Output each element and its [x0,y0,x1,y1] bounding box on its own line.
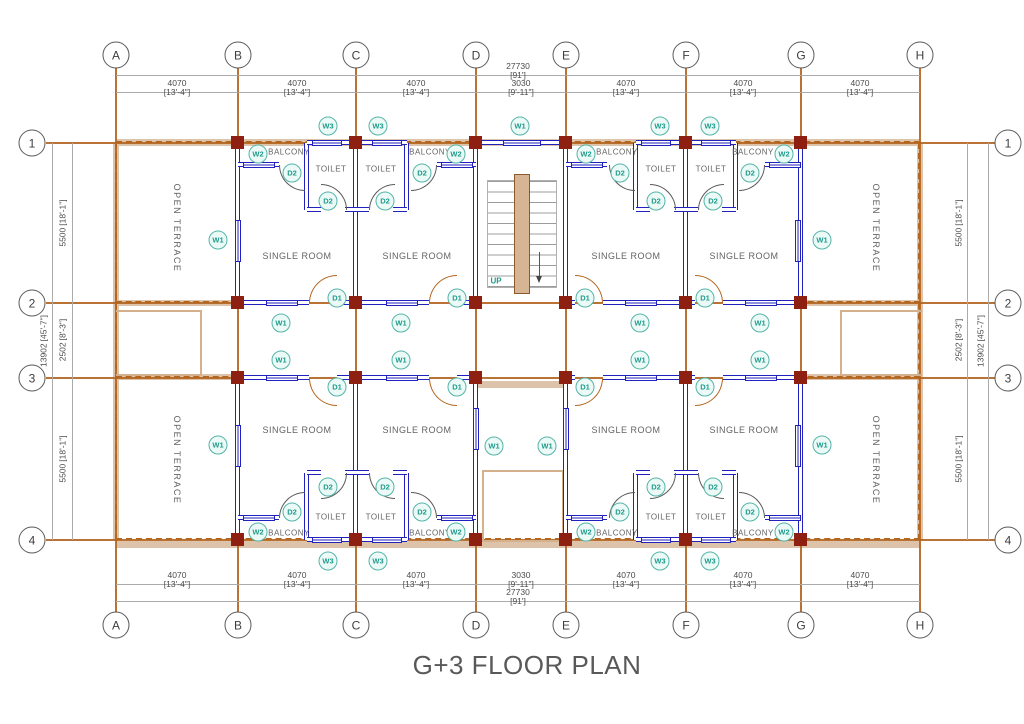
column [469,371,482,384]
column [469,136,482,149]
tag-d1: D1 [576,289,595,308]
grid-bubble-row: 3 [19,365,46,392]
window-symbol [701,537,731,543]
room-label-toilet: TOILET [646,513,677,522]
column [559,136,572,149]
column [469,533,482,546]
dim-line [52,143,53,540]
tag-d1: D1 [696,289,715,308]
window-symbol [795,425,801,467]
floor-plan-canvas: UP W1 W1 W1 W1 W1 W1 W1 W1 W1 W1 W1 W1 W… [0,0,1024,724]
tag-w2: W2 [447,145,466,164]
room-label-toilet: TOILET [646,165,677,174]
tag-d2: D2 [283,164,302,183]
dim-top-seg: 4070[13'-4"] [847,79,873,98]
window-symbol [386,300,418,306]
tag-d1: D1 [328,289,347,308]
tag-w3: W3 [319,117,338,136]
wall-segment [345,470,369,475]
column [794,296,807,309]
dim-bottom-seg: 4070[13'-4"] [403,571,429,590]
drawing-title: G+3 FLOOR PLAN [413,650,642,681]
tag-d2: D2 [704,192,723,211]
window-symbol [745,375,777,381]
tag-d1: D1 [576,378,595,397]
tag-d2: D2 [319,478,338,497]
window-symbol [641,140,671,146]
tag-w1: W1 [209,231,228,250]
dim-top-seg: 4070[13'-4"] [284,79,310,98]
tag-d2: D2 [611,503,630,522]
wall-segment [393,207,407,212]
dashed-edge-row2-right [798,301,920,303]
tag-w3: W3 [369,117,388,136]
column [231,136,244,149]
dim-line [988,143,989,540]
column [559,371,572,384]
tag-d2: D2 [741,503,760,522]
dim-top-seg: 4070[13'-4"] [403,79,429,98]
window-symbol [473,408,479,450]
tag-w2: W2 [249,523,268,542]
room-label-balcony: BALCONY [409,529,451,538]
dim-left-overall: 13902[45'-7"] [39,314,48,368]
wall-segment [473,143,478,303]
tag-w1: W1 [485,437,504,456]
grid-bubble-row: 3 [995,365,1022,392]
wall-segment [722,470,736,475]
grid-bubble-row: 4 [995,527,1022,554]
grid-bubble-col: B [225,612,252,639]
tag-w3: W3 [369,552,388,571]
window-symbol [701,140,731,146]
grid-bubble-col: E [553,42,580,69]
dim-right-seg: 2502[8'-3"] [954,318,963,363]
room-label-single-room: SINGLE ROOM [709,425,778,435]
window-symbol [795,220,801,262]
tag-w3: W3 [319,552,338,571]
room-label-toilet: TOILET [366,513,397,522]
tag-w1: W1 [751,351,770,370]
dim-bottom-seg: 4070[13'-4"] [284,571,310,590]
room-label-toilet: TOILET [696,165,727,174]
column [679,371,692,384]
column [794,136,807,149]
window-symbol [625,300,657,306]
grid-bubble-row: 1 [995,130,1022,157]
stair-up-label: UP [490,277,501,286]
column [231,296,244,309]
tag-d2: D2 [319,192,338,211]
column [559,533,572,546]
window-symbol [266,375,298,381]
tag-d1: D1 [328,378,347,397]
wall-segment [674,470,698,475]
window-symbol [235,425,241,467]
window-symbol [441,515,473,521]
grid-bubble-col: C [343,42,370,69]
window-symbol [312,537,342,543]
window-symbol [235,220,241,262]
window-symbol [571,515,603,521]
wall-segment [636,470,650,475]
dim-bottom-overall: 27730[91'] [506,588,530,607]
stair-arrow-head [536,276,542,283]
room-label-single-room: SINGLE ROOM [591,425,660,435]
room-label-balcony: BALCONY [409,148,451,157]
tag-w2: W2 [249,145,268,164]
dim-bottom-seg: 4070[13'-4"] [730,571,756,590]
grid-bubble-col: H [907,42,934,69]
dim-left-seg: 2502[8'-3"] [58,318,67,363]
grid-bubble-col: F [673,42,700,69]
dim-right-overall: 13902[45'-7"] [976,314,985,368]
window-symbol [386,375,418,381]
room-label-balcony: BALCONY [732,148,774,157]
tag-w1: W1 [538,437,557,456]
grid-bubble-row: 2 [995,290,1022,317]
window-symbol [769,515,801,521]
tag-w1: W1 [392,314,411,333]
room-label-toilet: TOILET [366,165,397,174]
dim-bottom-seg: 4070[13'-4"] [847,571,873,590]
window-symbol [372,537,402,543]
room-label-single-room: SINGLE ROOM [262,425,331,435]
column [349,533,362,546]
grid-bubble-col: F [673,612,700,639]
wall-segment [683,378,688,540]
wall-segment [307,207,321,212]
tag-w1: W1 [511,117,530,136]
tag-w1: W1 [813,231,832,250]
window-symbol [503,140,541,146]
stair-arrow-line [539,252,540,276]
tag-w1: W1 [272,351,291,370]
tag-w1: W1 [813,436,832,455]
room-label-single-room: SINGLE ROOM [382,425,451,435]
dashed-edge-row3-left [116,376,238,378]
dim-top-seg: 4070[13'-4"] [613,79,639,98]
terrace-box-left [116,310,202,376]
room-label-toilet: TOILET [696,513,727,522]
dim-right-seg: 5500[18'-1"] [954,198,963,247]
window-symbol [625,375,657,381]
window-symbol [372,140,402,146]
grid-bubble-col: G [788,42,815,69]
room-label-balcony: BALCONY [596,529,638,538]
tag-w2: W2 [577,145,596,164]
room-label-toilet: TOILET [316,165,347,174]
tag-d2: D2 [413,164,432,183]
room-label-single-room: SINGLE ROOM [262,251,331,261]
dashed-edge-row3-right [798,376,920,378]
tag-d2: D2 [741,164,760,183]
window-symbol [745,300,777,306]
wall-segment [674,207,698,212]
room-label-single-room: SINGLE ROOM [709,251,778,261]
dim-top-seg: 4070[13'-4"] [730,79,756,98]
column [469,296,482,309]
parapet-band-shaft [476,381,566,388]
room-label-open-terrace: OPEN TERRACE [172,416,182,505]
column [349,296,362,309]
dashed-edge-row2-left [116,301,238,303]
room-label-open-terrace: OPEN TERRACE [871,416,881,505]
tag-w3: W3 [651,117,670,136]
window-symbol [563,408,569,450]
tag-d2: D2 [647,478,666,497]
window-symbol [243,515,275,521]
tag-w3: W3 [651,552,670,571]
grid-bubble-col: D [463,42,490,69]
grid-bubble-row: 4 [19,527,46,554]
window-symbol [641,537,671,543]
dim-bottom-seg: 4070[13'-4"] [613,571,639,590]
tag-w1: W1 [209,436,228,455]
grid-bubble-col: B [225,42,252,69]
tag-d2: D2 [376,478,395,497]
tag-d2: D2 [611,164,630,183]
tag-w1: W1 [631,351,650,370]
tag-d2: D2 [283,503,302,522]
wall-segment [563,143,568,303]
tag-w1: W1 [392,351,411,370]
tag-w3: W3 [701,117,720,136]
wall-segment [353,143,358,303]
tag-w1: W1 [751,314,770,333]
grid-bubble-col: C [343,612,370,639]
room-label-single-room: SINGLE ROOM [591,251,660,261]
dim-line [967,143,968,540]
dim-bottom-seg: 4070[13'-4"] [164,571,190,590]
room-label-toilet: TOILET [316,513,347,522]
room-label-open-terrace: OPEN TERRACE [172,184,182,273]
shaft-box [482,470,564,542]
grid-bubble-col: H [907,612,934,639]
stair-rail [514,174,530,294]
dim-top-seg: 4070[13'-4"] [164,79,190,98]
window-symbol [266,300,298,306]
grid-bubble-col: G [788,612,815,639]
dim-left-seg: 5500[18'-1"] [58,198,67,247]
tag-d2: D2 [647,192,666,211]
grid-bubble-row: 1 [19,130,46,157]
column [559,296,572,309]
wall-segment [393,470,407,475]
room-label-balcony: BALCONY [732,529,774,538]
wall-segment [722,207,736,212]
tag-d2: D2 [704,478,723,497]
window-symbol [312,140,342,146]
tag-w1: W1 [272,314,291,333]
column [679,136,692,149]
room-label-open-terrace: OPEN TERRACE [871,184,881,273]
grid-bubble-col: A [103,42,130,69]
column [679,296,692,309]
column [349,136,362,149]
tag-w2: W2 [775,145,794,164]
tag-d2: D2 [413,503,432,522]
dim-left-seg: 5500[18'-1"] [58,434,67,483]
wall-segment [683,143,688,303]
wall-segment [345,207,369,212]
grid-bubble-col: A [103,612,130,639]
room-label-balcony: BALCONY [268,529,310,538]
tag-w2: W2 [577,523,596,542]
column [794,371,807,384]
column [349,371,362,384]
wall-segment [307,470,321,475]
dim-right-seg: 5500[18'-1"] [954,434,963,483]
tag-d1: D1 [448,289,467,308]
room-label-balcony: BALCONY [268,148,310,157]
tag-w3: W3 [701,552,720,571]
grid-bubble-col: E [553,612,580,639]
tag-d1: D1 [448,378,467,397]
room-label-single-room: SINGLE ROOM [382,251,451,261]
grid-bubble-row: 2 [19,290,46,317]
wall-segment [353,378,358,540]
column [231,533,244,546]
grid-bubble-col: D [463,612,490,639]
terrace-box-right [840,310,922,376]
tag-w2: W2 [775,523,794,542]
tag-d1: D1 [696,378,715,397]
column [794,533,807,546]
tag-d2: D2 [376,192,395,211]
wall-segment [636,207,650,212]
column [679,533,692,546]
column [231,371,244,384]
tag-w1: W1 [631,314,650,333]
room-label-balcony: BALCONY [596,148,638,157]
dim-line [72,143,73,540]
tag-w2: W2 [447,523,466,542]
dim-top-seg-mid: 3030[9'-11"] [508,79,534,98]
